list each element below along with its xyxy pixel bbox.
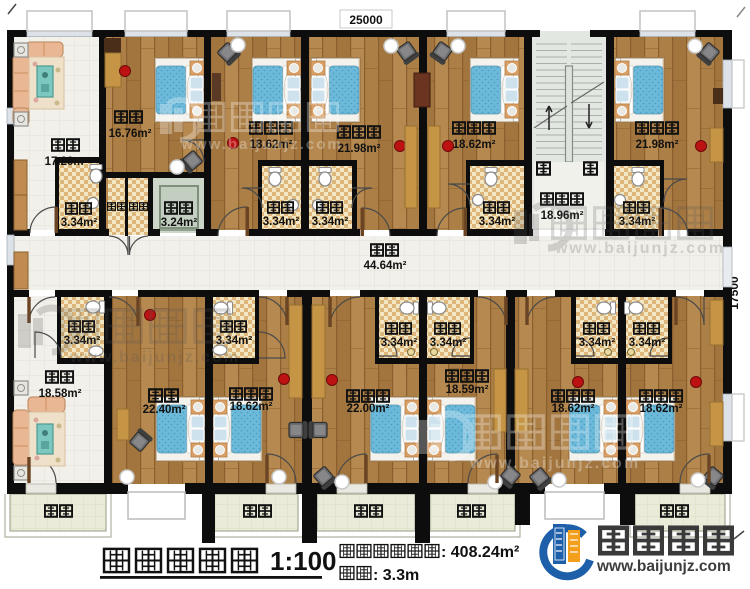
svg-text:21.98m²: 21.98m² [338,143,381,155]
svg-text:44.64m²: 44.64m² [364,260,407,272]
svg-text:www.baijunjz.com: www.baijunjz.com [469,455,640,472]
svg-text:1:100: 1:100 [270,546,337,576]
svg-text:www.baijunjz.com: www.baijunjz.com [554,240,725,257]
svg-text:3.34m²: 3.34m² [263,216,300,228]
svg-text:3.34m²: 3.34m² [312,216,349,228]
svg-text:18.62m²: 18.62m² [230,401,273,413]
svg-text:: 408.24m²: : 408.24m² [441,544,519,561]
svg-text:17.20m²: 17.20m² [45,156,88,168]
svg-text:18.62m²: 18.62m² [640,403,683,415]
svg-text:22.40m²: 22.40m² [143,404,186,416]
svg-text:18.62m²: 18.62m² [552,403,595,415]
svg-text:18.59m²: 18.59m² [446,384,489,396]
svg-text:22.00m²: 22.00m² [347,403,390,415]
svg-text:3.24m²: 3.24m² [161,217,198,229]
svg-text:www.baijunjz.com: www.baijunjz.com [69,349,240,366]
svg-text:www.baijunjz.com: www.baijunjz.com [180,136,342,153]
svg-text:18.62m²: 18.62m² [453,139,496,151]
svg-text:21.98m²: 21.98m² [636,139,679,151]
svg-text:18.58m²: 18.58m² [39,388,82,400]
svg-text:: 3.3m: : 3.3m [373,567,419,584]
svg-text:3.34m²: 3.34m² [430,337,467,349]
svg-text:3.34m²: 3.34m² [479,216,516,228]
svg-text:3.34m²: 3.34m² [381,337,418,349]
svg-text:25000: 25000 [349,13,383,27]
svg-text:16.76m²: 16.76m² [109,128,152,140]
svg-text:www.baijunjz.com: www.baijunjz.com [596,558,731,575]
svg-text:3.34m²: 3.34m² [629,337,666,349]
svg-text:3.34m²: 3.34m² [579,337,616,349]
svg-text:3.34m²: 3.34m² [61,217,98,229]
